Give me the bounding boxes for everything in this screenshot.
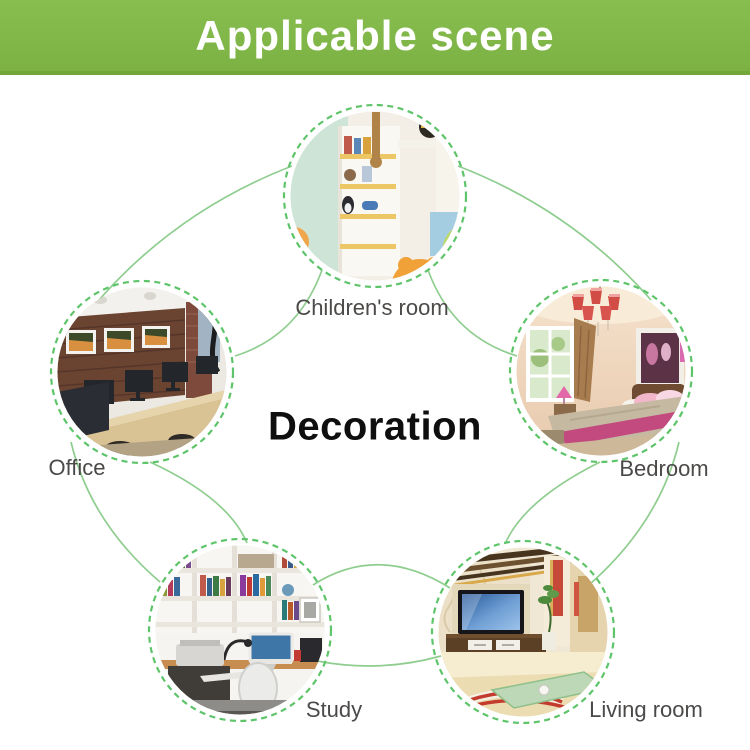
page: Applicable scene bbox=[0, 0, 750, 750]
node-label-study: Study bbox=[306, 697, 362, 723]
arc-children-office-outer bbox=[99, 166, 292, 300]
office-photo bbox=[57, 287, 227, 457]
arc-bedroom-living-inner bbox=[505, 462, 600, 544]
decoration-diagram bbox=[0, 0, 750, 750]
arc-children-bedroom-outer bbox=[458, 166, 651, 300]
node-label-children-room: Children's room bbox=[295, 295, 448, 321]
node-label-bedroom: Bedroom bbox=[619, 456, 708, 482]
study-photo bbox=[155, 545, 325, 717]
node-label-office: Office bbox=[48, 455, 105, 481]
center-title: Decoration bbox=[268, 405, 482, 450]
arc-study-living-outer bbox=[317, 656, 441, 666]
node-label-living-room: Living room bbox=[589, 697, 703, 723]
living-room-photo bbox=[438, 547, 608, 718]
arc-office-study-inner bbox=[150, 462, 247, 543]
bedroom-photo bbox=[514, 272, 688, 457]
arc-study-living-inner bbox=[313, 565, 450, 588]
